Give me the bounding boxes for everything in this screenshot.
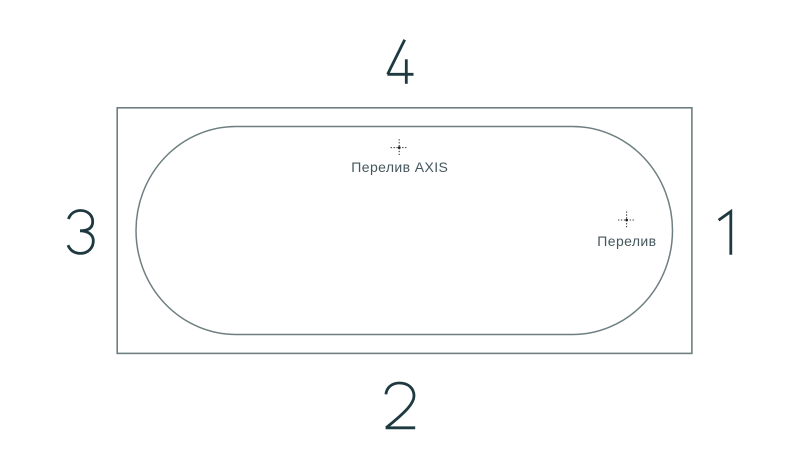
svg-text:Перелив AXIS: Перелив AXIS — [351, 159, 448, 175]
svg-text:Перелив: Перелив — [597, 233, 656, 249]
